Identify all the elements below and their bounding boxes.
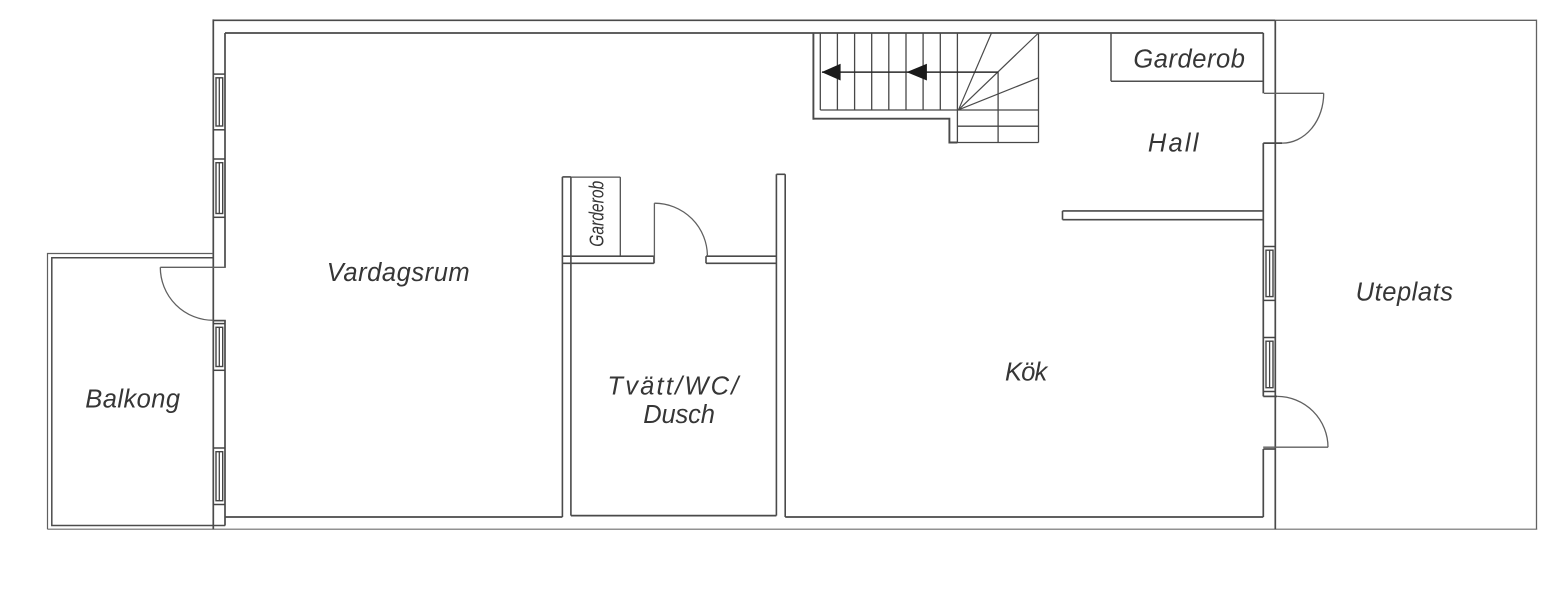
svg-text:Garderob: Garderob: [587, 181, 609, 247]
svg-text:Balkong: Balkong: [85, 386, 180, 414]
svg-text:Tvätt/WC/: Tvätt/WC/: [607, 372, 741, 400]
svg-text:Uteplats: Uteplats: [1356, 278, 1454, 306]
svg-text:Hall: Hall: [1148, 129, 1201, 157]
svg-text:Vardagsrum: Vardagsrum: [327, 259, 470, 287]
svg-text:Garderob: Garderob: [1133, 46, 1245, 74]
svg-text:Kök: Kök: [1005, 359, 1048, 387]
svg-text:Dusch: Dusch: [643, 401, 715, 429]
